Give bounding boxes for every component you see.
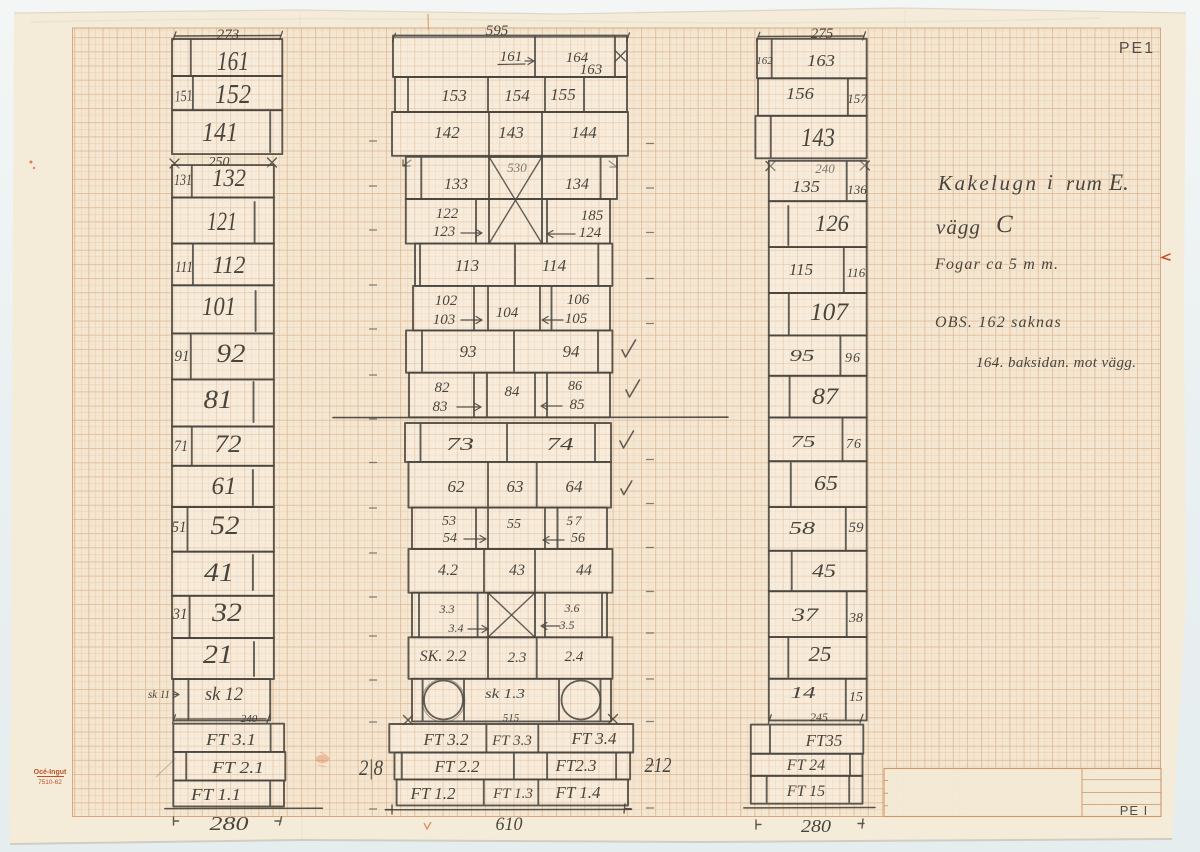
svg-text:FT 3.4: FT 3.4 <box>570 729 617 748</box>
svg-text:FT2.3: FT2.3 <box>554 756 596 775</box>
svg-text:111: 111 <box>175 259 193 276</box>
svg-text:156: 156 <box>786 84 815 103</box>
svg-text:131: 131 <box>174 172 192 189</box>
svg-text:143: 143 <box>801 123 835 152</box>
svg-text:84: 84 <box>505 384 521 400</box>
svg-text:rum: rum <box>1066 171 1103 195</box>
svg-text:185: 185 <box>581 208 604 224</box>
svg-text:PE1: PE1 <box>1119 40 1155 57</box>
svg-text:2.4: 2.4 <box>565 649 584 665</box>
svg-text:FT 2.1: FT 2.1 <box>211 758 264 777</box>
svg-text:161: 161 <box>217 46 249 76</box>
svg-text:151: 151 <box>174 87 193 105</box>
svg-text:14: 14 <box>791 683 817 702</box>
svg-text:126: 126 <box>815 211 849 236</box>
svg-text:21: 21 <box>203 640 233 669</box>
svg-text:124: 124 <box>579 225 602 241</box>
svg-text:FT 15: FT 15 <box>786 783 825 800</box>
svg-text:104: 104 <box>496 305 519 321</box>
svg-text:2.3: 2.3 <box>508 650 527 666</box>
svg-text:SK. 2.2: SK. 2.2 <box>420 648 467 665</box>
svg-text:81: 81 <box>204 385 233 414</box>
svg-text:52: 52 <box>211 511 240 540</box>
svg-text:141: 141 <box>202 117 238 147</box>
svg-text:154: 154 <box>504 86 530 105</box>
svg-text:38: 38 <box>848 611 863 626</box>
svg-text:134: 134 <box>565 176 589 193</box>
svg-text:123: 123 <box>433 224 456 240</box>
svg-text:164. baksidan. mot vägg.: 164. baksidan. mot vägg. <box>976 355 1136 371</box>
svg-text:71: 71 <box>174 438 188 455</box>
svg-text:FT 1.3: FT 1.3 <box>492 786 533 802</box>
svg-text:132: 132 <box>212 165 246 192</box>
svg-text:157: 157 <box>847 91 867 106</box>
svg-text:102: 102 <box>435 293 458 309</box>
svg-text:72: 72 <box>215 431 242 458</box>
svg-text:3.5: 3.5 <box>559 618 575 632</box>
svg-text:E.: E. <box>1108 170 1129 195</box>
svg-text:65: 65 <box>814 471 838 495</box>
svg-text:55: 55 <box>507 517 521 532</box>
svg-text:i: i <box>1047 170 1053 194</box>
svg-text:133: 133 <box>444 176 468 193</box>
svg-text:Kakelugn: Kakelugn <box>937 171 1038 195</box>
svg-text:61: 61 <box>212 473 237 500</box>
svg-text:63: 63 <box>507 477 524 496</box>
svg-text:C: C <box>996 211 1013 238</box>
svg-text:sk 12: sk 12 <box>205 684 243 705</box>
svg-text:113: 113 <box>455 256 479 275</box>
svg-text:105: 105 <box>565 311 588 327</box>
svg-text:31: 31 <box>172 606 188 623</box>
svg-text:87: 87 <box>812 384 840 409</box>
svg-text:54: 54 <box>443 531 457 546</box>
svg-text:93: 93 <box>460 342 477 361</box>
svg-text:FT 3.3: FT 3.3 <box>491 733 532 749</box>
svg-text:136: 136 <box>847 182 867 197</box>
svg-text:143: 143 <box>498 123 524 142</box>
svg-text:64: 64 <box>566 477 584 496</box>
svg-text:92: 92 <box>217 339 246 368</box>
svg-text:144: 144 <box>571 123 597 142</box>
svg-text:95: 95 <box>790 346 815 365</box>
svg-text:86: 86 <box>568 379 582 394</box>
svg-text:51: 51 <box>172 519 187 536</box>
svg-text:3.3: 3.3 <box>439 602 455 616</box>
svg-text:114: 114 <box>542 256 567 275</box>
svg-text:163: 163 <box>580 62 603 78</box>
svg-text:OBS. 162 saknas: OBS. 162 saknas <box>935 314 1062 331</box>
svg-text:FT 3.2: FT 3.2 <box>422 730 469 749</box>
svg-text:82: 82 <box>435 380 451 396</box>
svg-text:135: 135 <box>792 177 820 196</box>
svg-text:74: 74 <box>547 434 574 454</box>
svg-text:96: 96 <box>845 351 861 366</box>
svg-text:25: 25 <box>809 642 832 666</box>
svg-text:56: 56 <box>571 531 585 546</box>
svg-text:116: 116 <box>847 265 866 280</box>
svg-text:37: 37 <box>791 605 820 626</box>
svg-text:2|8: 2|8 <box>359 755 383 780</box>
svg-text:610: 610 <box>496 814 523 835</box>
svg-text:107: 107 <box>810 299 850 326</box>
svg-text:58: 58 <box>789 518 815 538</box>
svg-text:53: 53 <box>442 514 456 529</box>
svg-text:57: 57 <box>567 513 584 528</box>
svg-text:121: 121 <box>207 207 237 236</box>
svg-text:Fogar ca 5 m m.: Fogar ca 5 m m. <box>934 256 1059 273</box>
svg-text:73: 73 <box>446 434 474 454</box>
svg-text:106: 106 <box>567 292 590 308</box>
svg-text:85: 85 <box>570 397 586 413</box>
svg-text:vägg: vägg <box>936 215 981 239</box>
svg-text:62: 62 <box>448 477 466 496</box>
svg-text:163: 163 <box>807 51 835 70</box>
svg-text:103: 103 <box>433 312 456 328</box>
svg-text:45: 45 <box>812 561 836 582</box>
svg-text:101: 101 <box>202 292 236 321</box>
svg-text:75: 75 <box>791 432 816 451</box>
svg-text:15: 15 <box>849 690 863 705</box>
svg-text:112: 112 <box>213 252 246 279</box>
svg-text:FT 1.2: FT 1.2 <box>409 784 456 803</box>
svg-text:76: 76 <box>846 437 862 452</box>
svg-text:153: 153 <box>441 86 467 105</box>
svg-text:245: 245 <box>810 710 828 724</box>
svg-text:FT 3.1: FT 3.1 <box>205 730 256 749</box>
svg-text:43: 43 <box>509 562 525 579</box>
svg-text:280: 280 <box>801 816 831 836</box>
svg-text:59: 59 <box>849 520 865 536</box>
svg-text:515: 515 <box>503 712 520 724</box>
svg-text:44: 44 <box>576 562 592 579</box>
svg-text:FT 1.4: FT 1.4 <box>554 783 601 802</box>
svg-text:94: 94 <box>563 342 581 361</box>
svg-text:83: 83 <box>433 399 448 415</box>
svg-text:sk 11: sk 11 <box>148 687 170 701</box>
svg-text:162: 162 <box>756 55 773 67</box>
svg-text:3.6: 3.6 <box>564 601 580 615</box>
svg-text:155: 155 <box>550 85 576 104</box>
svg-text:152: 152 <box>215 79 251 109</box>
svg-text:32: 32 <box>211 598 242 627</box>
svg-text:Océ-Ingut: Océ-Ingut <box>34 769 67 776</box>
svg-text:sk 1.3: sk 1.3 <box>485 687 525 702</box>
svg-text:PE I: PE I <box>1120 803 1149 818</box>
svg-text:91: 91 <box>175 348 190 365</box>
svg-text:122: 122 <box>436 206 459 222</box>
svg-text:41: 41 <box>204 558 234 587</box>
svg-text:115: 115 <box>789 260 813 279</box>
svg-text:161: 161 <box>500 49 523 65</box>
svg-text:142: 142 <box>434 123 460 142</box>
svg-text:3.4: 3.4 <box>448 621 464 635</box>
svg-text:7510-62: 7510-62 <box>38 779 62 786</box>
svg-text:280: 280 <box>210 813 249 835</box>
svg-text:FT 1.1: FT 1.1 <box>190 785 241 804</box>
svg-text:4.2: 4.2 <box>438 562 458 579</box>
svg-text:FT35: FT35 <box>805 731 843 750</box>
svg-text:FT 24: FT 24 <box>786 757 825 774</box>
svg-text:FT 2.2: FT 2.2 <box>433 757 480 776</box>
